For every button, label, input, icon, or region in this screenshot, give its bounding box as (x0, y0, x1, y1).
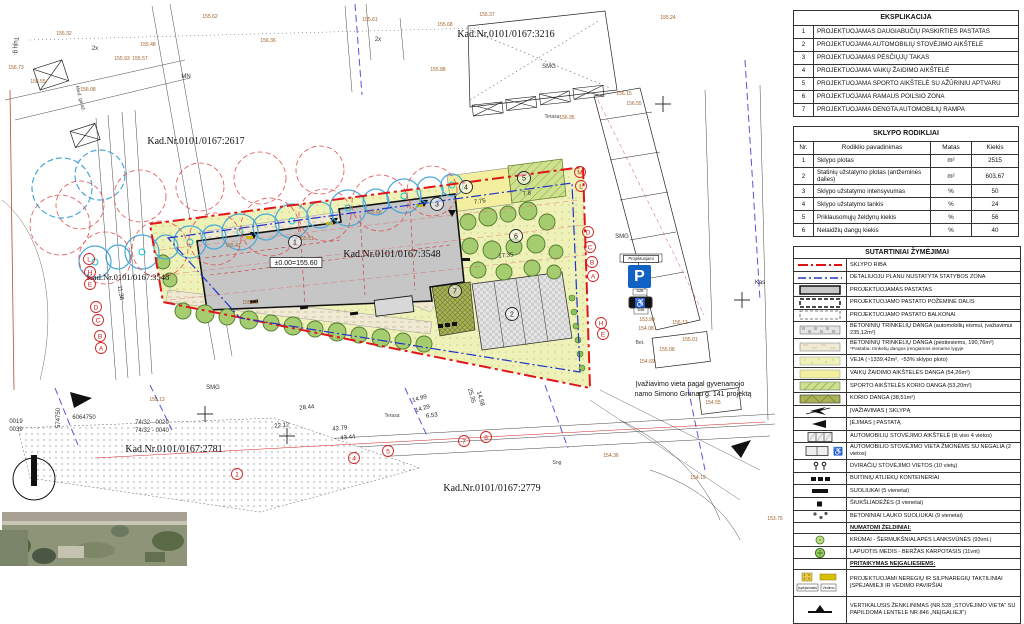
playground-swatch (796, 369, 844, 379)
map-label: 155.61 (362, 17, 378, 23)
axis-label: 4 (352, 455, 356, 462)
legend-label: AUTOMOBILIO STOVĖJIMO VIETA ŽMONĖMS SU N… (847, 443, 1020, 459)
eksplikacija-row: 5PROJEKTUOJAMA SPORTO AIKŠTELĖ SU AŽŪRIN… (794, 78, 1019, 91)
legend-row: SKLYPO RIBA (794, 259, 1020, 272)
concrete-bench-icon (796, 511, 844, 521)
map-label: 574750 (56, 407, 62, 428)
legend-panel: EKSPLIKACIJA 1PROJEKTUOJAMAS DAUGIABUČIŲ… (793, 10, 1019, 624)
explication-ref-label: 5 (522, 176, 526, 183)
map-label: 74/32 - 0040 (135, 428, 169, 434)
axis-label: H (88, 269, 93, 276)
eksplikacija-row: 7PROJEKTUOJAMA DENGTA AUTOMOBILIŲ RAMPA (794, 104, 1019, 117)
parking-icon (796, 432, 844, 442)
aerial-photo (0, 512, 187, 566)
rodikliai-table: SKLYPO RODIKLIAI Nr.Rodiklio pavadinimas… (793, 126, 1019, 237)
explication-ref-label: 1 (293, 240, 297, 247)
legend-label: ĮĖJIMAS Į PASTATĄ (847, 418, 1020, 430)
tree-icon (796, 548, 844, 558)
legend-label: PRITAIKYMAS NEĮGALIESIEMS: (847, 559, 1020, 569)
eksplikacija-row: 1PROJEKTUOJAMAS DAUGIABUČIŲ PASKIRTIES P… (794, 26, 1019, 39)
parking-area (472, 272, 572, 350)
map-label: Įvažiavimo vieta pagal gyvenamojo (636, 381, 745, 388)
eksplikacija-table: EKSPLIKACIJA 1PROJEKTUOJAMAS DAUGIABUČIŲ… (793, 10, 1019, 117)
svg-text:Vedimo: Vedimo (823, 586, 835, 590)
waste-container-icon-cell (794, 473, 847, 485)
rodikliai-row: 3Sklypo užstatymo intensyvumas%50 (794, 185, 1019, 198)
balcony-swatch (796, 310, 844, 320)
eksplikacija-row: 2PROJEKTUOJAMA AUTOMOBILIŲ STOVĖJIMO AIK… (794, 39, 1019, 52)
axis-label: E (88, 281, 93, 288)
axis-label: E (601, 331, 606, 338)
explication-ref-label: 6 (514, 234, 518, 241)
map-label: 153.75 (767, 516, 783, 522)
legend-label: AUTOMOBILIŲ STOVĖJIMO AIKŠTELĖ (iš viso … (847, 431, 1020, 443)
legend-label: BETONINIŲ TRINKELIŲ DANGA (pėstiesiems, … (847, 339, 1020, 354)
vertical-sign-icon (796, 598, 844, 622)
playground-swatch-cell (794, 368, 847, 380)
map-label: 154.69 (639, 359, 655, 365)
legend-row: AUTOMOBILIŲ STOVĖJIMO AIKŠTELĖ (iš viso … (794, 431, 1020, 444)
map-label: SMG (615, 234, 629, 240)
legend-title: SUTARTINIAI ŽYMĖJIMAI (794, 247, 1020, 259)
legend-empty-symbol-cell (794, 559, 847, 569)
map-label: SMG (206, 385, 220, 391)
map-label: 14.58 (475, 391, 485, 408)
map-label: 155.24 (660, 15, 676, 21)
blue-dashdot-line (796, 273, 844, 283)
building-entry-icon-cell (794, 418, 847, 430)
tactile-icon: Įspėjamasis Vedimo (796, 571, 844, 595)
map-label: Kad.Nr.0101/0167:3216 (457, 29, 554, 40)
map-label: 155.62 (202, 14, 218, 20)
rodikliai-header-row: Nr.Rodiklio pavadinimasMatasKiekis (794, 142, 1019, 155)
legend-row: Įspėjamasis VedimoPROJEKTUOJAMI NEREGIŲ … (794, 570, 1020, 597)
bench-icon (796, 486, 844, 496)
west-boundary-line (10, 90, 14, 390)
legend-row: ĮĖJIMAS Į PASTATĄ (794, 418, 1020, 431)
map-label: 14.99 (412, 394, 429, 404)
legend-label: DETALIUOJU PLANU NUSTATYTA STATYBOS ZONA (847, 272, 1020, 284)
axis-label: A (591, 273, 596, 280)
legend-label: ŠIUKŠLIADĖŽĖS (3 vienetai) (847, 498, 1020, 510)
red-dashdot-line-cell (794, 259, 847, 271)
legend-label: KRŪMAI - ŠERMUKŠNIALAPĖS LANKSVŪNĖS (93v… (847, 534, 1020, 546)
fence-row (472, 85, 605, 116)
map-label: 155.48 (140, 42, 156, 48)
legend-row: PROJEKTUOJAMAS PASTATAS (794, 284, 1020, 297)
legend-label: BETONINIŲ TRINKELIŲ DANGA (automobilių e… (847, 322, 1020, 338)
rodikliai-row: 5Priklausomųjų želdynų kiekis%56 (794, 211, 1019, 224)
bike-parking-icon (796, 461, 844, 471)
legend-label: VEJA (~1339,42m², ~53% sklypo ploto) (847, 355, 1020, 367)
shrub-icon (796, 535, 844, 545)
svg-text:♿: ♿ (833, 446, 843, 456)
axis-label: 5 (386, 448, 390, 455)
legend-row: SUOLIUKAI (5 vienetai) (794, 485, 1020, 498)
legend-row: VAIKŲ ŽAIDIMO AIKŠTELĖS DANGA (54,26m²) (794, 368, 1020, 381)
axis-label: D (586, 229, 591, 236)
map-label: 2x (375, 37, 381, 43)
map-label: 6.53 (426, 412, 439, 419)
legend-label: BETONINIAI LAUKO SUOLIUKAI (9 vienetai) (847, 511, 1020, 523)
legend-label: LAPUOTIS MEDIS - BERŽAS KARPOTASIS (11vn… (847, 547, 1020, 559)
map-label: 156.36 (260, 38, 276, 44)
map-label: 155.88 (430, 67, 446, 73)
axis-label: M (577, 169, 582, 176)
axis-label: L (579, 183, 583, 190)
eksplikacija-title: EKSPLIKACIJA (794, 11, 1019, 26)
map-label: 28.44 (299, 404, 315, 412)
existing-pavement (18, 418, 420, 512)
map-label: Terasa (544, 114, 559, 120)
waste-container-icon (796, 474, 844, 484)
legend-row: PROJEKTUOJAMO PASTATO BALKONAI (794, 310, 1020, 323)
map-label: 155.68 (366, 210, 382, 216)
map-label: Kad.Nr.0101/0167:2781 (125, 444, 222, 455)
axis-label: L (87, 256, 91, 263)
map-label: 156.55 (626, 101, 642, 107)
blue-dashdot-line-cell (794, 272, 847, 284)
lawn-swatch (796, 356, 844, 366)
korio-swatch (796, 394, 844, 404)
legend-label: DVIRAČIŲ STOVĖJIMO VIETOS (10 vietų) (847, 460, 1020, 472)
parking-disabled-icon: ♿ (796, 446, 844, 456)
legend-row: KORIO DANGA (38,51m²) (794, 393, 1020, 406)
legend-row: DETALIUOJU PLANU NUSTATYTA STATYBOS ZONA (794, 272, 1020, 285)
vertical-sign-icon-cell (794, 597, 847, 623)
legend-label: PROJEKTUOJAMO PASTATO BALKONAI (847, 310, 1020, 322)
map-label: 155.63 (242, 300, 258, 306)
map-label: SMG (542, 64, 556, 70)
rodikliai-row: 2Statinių užstatymo plotas (antžeminės d… (794, 168, 1019, 185)
legend-row: ♿AUTOMOBILIO STOVĖJIMO VIETA ŽMONĖMS SU … (794, 443, 1020, 460)
legend-row: VEJA (~1339,42m², ~53% sklypo ploto) (794, 355, 1020, 368)
wheelchair-icon: ♿ (635, 297, 646, 308)
legend-label: NUMATOMI ŽELDINIAI: (847, 523, 1020, 533)
map-label: 156.15 (616, 91, 632, 97)
legend-row: ĮVAŽIAVIMAS Į SKLYPĄ (794, 406, 1020, 419)
legend-row: ŠIUKŠLIADĖŽĖS (3 vienetai) (794, 498, 1020, 511)
axis-label: 1 (235, 471, 239, 478)
map-label: namo Simono Grunau g. 141 projektą (635, 391, 752, 398)
legend-row: NUMATOMI ŽELDINIAI: (794, 523, 1020, 534)
map-label: 155.41 (225, 243, 241, 249)
explication-ref-label: 7 (453, 289, 457, 296)
site-plan-drawing: Kad.Nr.0101/0167:3216Kad.Nr.0101/0167:26… (0, 0, 795, 567)
pavers-drive-swatch (796, 325, 844, 335)
balcony-swatch-cell (794, 310, 847, 322)
map-label: 155.93 (114, 56, 130, 62)
legend-row: VERTIKALUSIS ŽENKLINIMAS (NR.528 „STOVĖJ… (794, 597, 1020, 623)
legend-row: PROJEKTUOJAMO PASTATO POŽEMINĖ DALIS (794, 297, 1020, 310)
map-label: Kad.Nr.0101/0167:3548 (87, 272, 170, 282)
sport-area (508, 159, 566, 203)
parking-sign-letter: P (634, 268, 645, 285)
map-label: 154.19 (690, 475, 706, 481)
legend-row: SPORTO AIKŠTELĖS KORIO DANGA (53,20m²) (794, 380, 1020, 393)
axis-label: B (98, 333, 102, 340)
map-label: Sng (553, 460, 562, 466)
rodikliai-row: 4Sklypo užstatymo tankis%24 (794, 198, 1019, 211)
eksplikacija-row: 4PROJEKTUOJAMA VAIKŲ ŽAIDIMO AIKŠTELĖ (794, 65, 1019, 78)
map-label: 155.08 (659, 347, 675, 353)
parcel-3216 (468, 11, 617, 107)
axis-label: A (99, 345, 104, 352)
rodikliai-row: 6Nelaidžių dangų kiekis%40 (794, 224, 1019, 237)
map-label: 25.35 (466, 388, 476, 405)
eksplikacija-row: 6PROJEKTUOJAMA RAMAUS POILSIO ZONA (794, 91, 1019, 104)
legend-label: VAIKŲ ŽAIDIMO AIKŠTELĖS DANGA (54,26m²) (847, 368, 1020, 380)
map-label: MN (181, 74, 190, 80)
trash-bin-icon (796, 499, 844, 509)
map-label: ±0.00=155.60 (275, 260, 318, 267)
building-swatch (796, 285, 844, 295)
building-swatch-cell (794, 284, 847, 296)
red-dashdot-line (796, 260, 844, 270)
map-label: Tujų g. (12, 37, 18, 55)
map-label: 153.90 (639, 317, 655, 323)
site-entry-icon (796, 406, 844, 416)
map-label: 154.36 (603, 453, 619, 459)
legend-label: VERTIKALUSIS ŽENKLINIMAS (NR.528 „STOVĖJ… (847, 597, 1020, 623)
sport-swatch (796, 381, 844, 391)
site-plan-svg: Kad.Nr.0101/0167:3216Kad.Nr.0101/0167:26… (0, 0, 795, 567)
map-label: 155.57 (132, 56, 148, 62)
svg-text:Įspėjamasis: Įspėjamasis (798, 586, 817, 590)
map-label: 155.13 (149, 397, 165, 403)
map-label: 43.44 (340, 434, 356, 442)
map-label: 11.38 (116, 285, 125, 301)
parking-icon-cell (794, 431, 847, 443)
map-label: 155.37 (479, 12, 495, 18)
map-label: 154.08 (638, 326, 654, 332)
tactile-icon-cell: Įspėjamasis Vedimo (794, 570, 847, 596)
map-label: 156.08 (80, 87, 96, 93)
legend-label: SUOLIUKAI (5 vienetai) (847, 485, 1020, 497)
map-label: 156.55 (30, 79, 46, 85)
underground-swatch-cell (794, 297, 847, 309)
legend-row: KRŪMAI - ŠERMUKŠNIALAPĖS LANKSVŪNĖS (93v… (794, 534, 1020, 547)
legend-label: PROJEKTUOJAMI NEREGIŲ IR SILPNAREGIŲ TAK… (847, 570, 1020, 596)
axis-label: C (588, 244, 593, 251)
legend-label: SPORTO AIKŠTELĖS KORIO DANGA (53,20m²) (847, 380, 1020, 392)
legend-label: ĮVAŽIAVIMAS Į SKLYPĄ (847, 406, 1020, 418)
trash-bin-icon-cell (794, 498, 847, 510)
legend-row: DVIRAČIŲ STOVĖJIMO VIETOS (10 vietų) (794, 460, 1020, 473)
explication-ref-label: 4 (464, 185, 468, 192)
explication-ref-label: 3 (435, 202, 439, 209)
site-entry-icon-cell (794, 406, 847, 418)
legend-row: PRITAIKYMAS NEĮGALIESIEMS: (794, 559, 1020, 570)
legend-label: SKLYPO RIBA (847, 259, 1020, 271)
map-label: 6064750 (72, 415, 96, 421)
tree-icon-cell (794, 547, 847, 559)
shrub-icon-cell (794, 534, 847, 546)
site-plan-sheet: { "panel": { "eksplikacija": { "title": … (0, 0, 1024, 567)
legend-label: BUITINIŲ ATLIEKŲ KONTEINERIAI (847, 473, 1020, 485)
legend-row: BUITINIŲ ATLIEKŲ KONTEINERIAI (794, 473, 1020, 486)
legend-label: KORIO DANGA (38,51m²) (847, 393, 1020, 405)
pavers-drive-swatch-cell (794, 322, 847, 338)
east-building (594, 88, 741, 414)
pavers-ped-swatch-cell (794, 339, 847, 354)
sutartiniai-zymejimai-legend: SUTARTINIAI ŽYMĖJIMAI SKLYPO RIBADETALIU… (793, 246, 1021, 624)
sport-swatch-cell (794, 380, 847, 392)
map-label: 156.95 (559, 115, 575, 121)
underground-swatch (796, 298, 844, 308)
legend-row: BETONINIAI LAUKO SUOLIUKAI (9 vienetai) (794, 511, 1020, 524)
map-label: 156.32 (56, 31, 72, 37)
existing-buildings (33, 60, 100, 148)
legend-empty-symbol-cell (794, 523, 847, 533)
map-label: 7.8 (522, 190, 532, 197)
map-label: 0019 (9, 419, 23, 425)
map-label: 42.79 (332, 425, 348, 433)
axis-label: H (599, 320, 604, 327)
map-label: 74/32 - 0020 (135, 420, 169, 426)
map-label: 155.01 (682, 337, 698, 343)
explication-ref-label: 2 (510, 312, 514, 319)
axis-label: 7 (462, 438, 466, 445)
legend-label: PROJEKTUOJAMAS PASTATAS (847, 284, 1020, 296)
map-label: Kas (755, 280, 765, 286)
pavers-ped-swatch (796, 342, 844, 352)
lawn-swatch-cell (794, 355, 847, 367)
legend-label: PROJEKTUOJAMO PASTATO POŽEMINĖ DALIS (847, 297, 1020, 309)
map-label: 155.13 (672, 320, 688, 326)
bike-parking-icon-cell (794, 460, 847, 472)
rodikliai-title: SKLYPO RODIKLIAI (794, 127, 1019, 142)
bench-icon-cell (794, 485, 847, 497)
axis-label: 8 (484, 434, 488, 441)
map-label: Kad.Nr.0101/0167:2779 (443, 483, 540, 494)
axis-label: D (94, 304, 99, 311)
axis-label: B (590, 259, 594, 266)
map-label: 528 (637, 288, 645, 293)
axis-label: C (96, 317, 101, 324)
map-label: Projektuojami (628, 256, 653, 261)
map-label: 2x (92, 46, 98, 52)
map-label: 0039 (9, 427, 23, 433)
map-label: 154.55 (705, 400, 721, 406)
korio-swatch-cell (794, 393, 847, 405)
building-entry-icon (796, 419, 844, 429)
map-label: Terasa (384, 413, 399, 419)
rodikliai-row: 1Sklypo plotasm²2515 (794, 155, 1019, 168)
legend-row: BETONINIŲ TRINKELIŲ DANGA (automobilių e… (794, 322, 1020, 339)
map-label: Kad.Nr.0101/0167:3548 (343, 249, 440, 260)
concrete-bench-icon-cell (794, 511, 847, 523)
map-label: 155.68 (437, 22, 453, 28)
parking-disabled-icon-cell: ♿ (794, 443, 847, 459)
map-label: 156.73 (8, 65, 24, 71)
legend-row: LAPUOTIS MEDIS - BERŽAS KARPOTASIS (11vn… (794, 547, 1020, 560)
map-label: Bet. (636, 340, 645, 346)
map-label: Kad.Nr.0101/0167:2617 (147, 136, 244, 147)
eksplikacija-row: 3PROJEKTUOJAMAS PĖSČIŲJŲ TAKAS (794, 52, 1019, 65)
legend-row: BETONINIŲ TRINKELIŲ DANGA (pėstiesiems, … (794, 339, 1020, 355)
